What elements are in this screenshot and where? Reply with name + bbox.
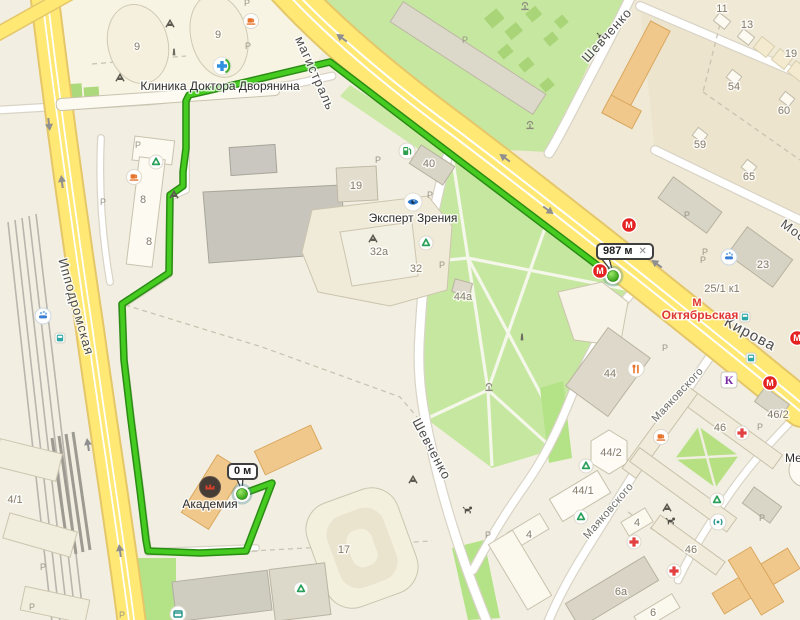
bus-stop-icon[interactable] [746, 353, 756, 363]
close-route-icon[interactable]: ✕ [639, 246, 647, 257]
recycling-icon[interactable] [294, 582, 308, 596]
recycling-icon[interactable] [574, 510, 588, 524]
bld-label: 32 [410, 263, 422, 275]
bld-label: 44/2 [600, 447, 621, 459]
bld-label: 46 [685, 544, 697, 556]
svg-text:Р: Р [135, 140, 141, 150]
route-distance-badge-start[interactable]: 987 м✕ [596, 243, 654, 260]
bld-label: 4 [526, 529, 532, 541]
bld-label: 40 [423, 158, 435, 170]
svg-text:Р: Р [757, 422, 763, 432]
svg-text:Р: Р [427, 190, 433, 200]
map-svg: М М М М К [0, 0, 800, 620]
bld-label: 32а [370, 246, 389, 258]
playground-icon [409, 476, 417, 483]
bld-label: 23 [757, 259, 769, 271]
svg-text:Р: Р [100, 197, 106, 207]
metro-letter: М [625, 220, 633, 230]
antenna-icon[interactable] [710, 514, 726, 530]
cafe-icon[interactable] [244, 14, 259, 29]
bld-label: 13 [741, 19, 753, 31]
poi-label-clinic: Клиника Доктора Дворянина [140, 79, 300, 93]
poi-label-optics: Эксперт Зрения [369, 211, 458, 225]
restaurant-icon[interactable] [628, 361, 644, 377]
metro-letter: М [596, 266, 604, 276]
route-distance-end-value: 0 м [234, 465, 251, 477]
metro-station-label: Октябрьская [662, 308, 739, 322]
svg-text:Р: Р [662, 343, 668, 353]
bld-label: 19 [350, 180, 362, 192]
recycling-icon[interactable] [149, 155, 163, 169]
bld-label: 44а [454, 291, 473, 303]
fuel-station-icon[interactable] [399, 143, 415, 159]
car-wash-icon[interactable] [721, 249, 737, 265]
pharmacy-icon[interactable] [735, 426, 749, 440]
poi-label-me-partial: Ме [785, 451, 800, 465]
bld-label: 25/1 к1 [704, 283, 739, 295]
clinic-icon[interactable] [213, 57, 231, 75]
bld-label: 8 [146, 236, 152, 248]
eye-optics-icon[interactable] [404, 193, 422, 211]
bld-label: 59 [694, 139, 706, 151]
bld-label: 4/1 [7, 494, 22, 506]
svg-text:Р: Р [119, 610, 125, 620]
svg-text:Р: Р [29, 602, 35, 612]
recycling-icon[interactable] [579, 459, 593, 473]
atm-icon[interactable] [170, 606, 186, 620]
k-letter: К [725, 373, 734, 387]
bld-label: 46/2 [767, 409, 788, 421]
bld-label: 9 [134, 41, 140, 53]
cafe-icon[interactable] [654, 430, 669, 445]
cafe-icon[interactable] [127, 170, 142, 185]
svg-text:Р: Р [462, 35, 468, 45]
academy-stadium-icon[interactable] [200, 477, 221, 498]
bld-label: 44 [604, 368, 616, 380]
svg-text:Р: Р [702, 247, 708, 257]
dog-park-icon [463, 507, 472, 514]
bld-label: 11 [716, 3, 727, 15]
svg-text:Р: Р [439, 260, 445, 270]
svg-text:Р: Р [485, 530, 491, 540]
playground-icon [663, 504, 671, 511]
route-distance-start-value: 987 м [603, 245, 633, 257]
k-store-icon[interactable]: К [721, 372, 737, 388]
metro-icon[interactable]: М [622, 218, 637, 233]
bld-label: 44/1 [572, 485, 593, 497]
poi-label-academy: Академия [182, 497, 237, 511]
bld-label: 6а [615, 586, 628, 598]
bld-label: 6 [650, 607, 656, 619]
metro-icon[interactable]: М [763, 376, 778, 391]
metro-icon[interactable]: М [790, 331, 800, 346]
bld-label: 65 [743, 171, 755, 183]
bld-label: 8 [140, 194, 146, 206]
svg-text:Р: Р [375, 155, 381, 165]
svg-text:Р: Р [684, 210, 690, 220]
bld-label: 54 [728, 81, 740, 93]
route-distance-badge-end[interactable]: 0 м [227, 463, 258, 480]
svg-text:Р: Р [244, 0, 250, 8]
bld-label: 9 [215, 29, 221, 41]
map-canvas[interactable]: М М М М К [0, 0, 800, 620]
metro-icon[interactable]: М [593, 264, 608, 279]
recycling-icon[interactable] [419, 236, 433, 250]
bus-stop-icon[interactable] [55, 333, 65, 343]
bld-label: 60 [778, 105, 790, 117]
pharmacy-icon[interactable] [667, 564, 681, 578]
metro-letter: М [793, 333, 800, 343]
svg-text:Р: Р [245, 41, 251, 51]
metro-letter: М [766, 378, 774, 388]
svg-text:Р: Р [759, 513, 765, 523]
car-wash-icon[interactable] [35, 308, 51, 324]
pharmacy-icon[interactable] [627, 535, 641, 549]
svg-text:Р: Р [40, 562, 46, 572]
recycling-icon[interactable] [710, 493, 724, 507]
bld-label: 4 [634, 517, 640, 529]
bld-label: 19 [785, 48, 797, 60]
bld-label: 46 [714, 422, 726, 434]
bld-label: 17 [338, 544, 350, 556]
